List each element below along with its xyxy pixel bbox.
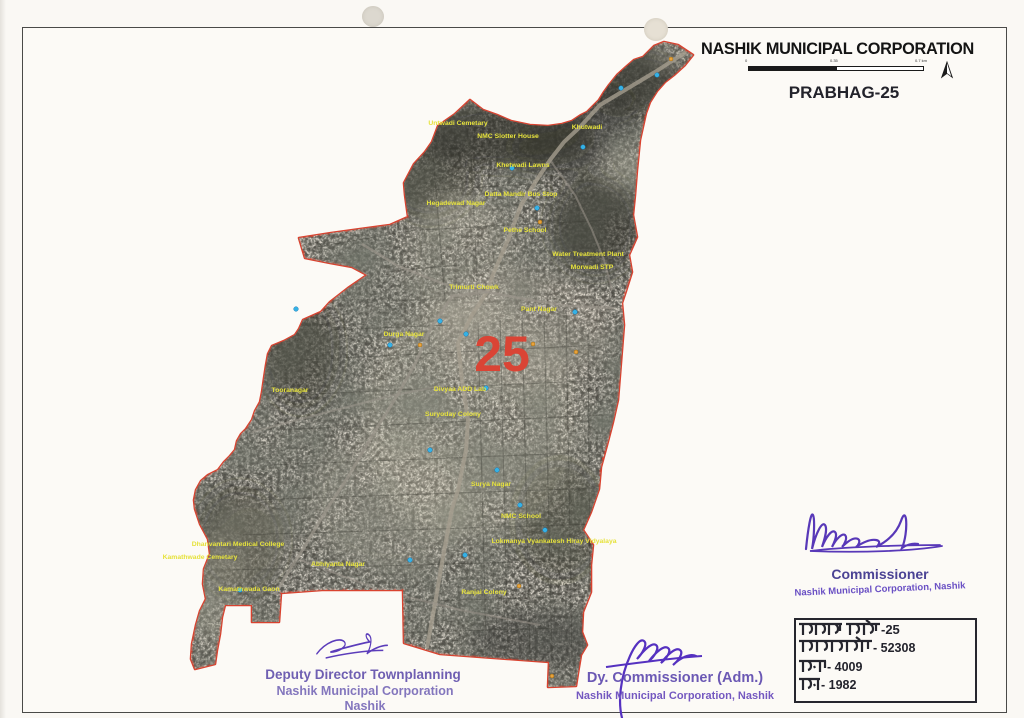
svg-text:Tooranagar: Tooranagar bbox=[272, 387, 309, 394]
svg-text:Datta Mandir Bus Stop: Datta Mandir Bus Stop bbox=[485, 191, 558, 198]
svg-text:Lokmanya Vyankatesh Hiray Vidy: Lokmanya Vyankatesh Hiray Vidyalaya bbox=[491, 538, 616, 545]
svg-text:Trimurti Chowk: Trimurti Chowk bbox=[449, 284, 499, 291]
svg-text:Pethe School: Pethe School bbox=[503, 227, 546, 234]
svg-text:Pant Nagar: Pant Nagar bbox=[521, 306, 557, 313]
svg-text:Morwadi STP: Morwadi STP bbox=[571, 264, 614, 271]
svg-text:Ranjai Colony: Ranjai Colony bbox=[461, 589, 507, 596]
svg-text:- 4009: - 4009 bbox=[827, 660, 862, 674]
svg-text:-25: -25 bbox=[881, 622, 900, 637]
svg-text:- 52308: - 52308 bbox=[873, 641, 915, 655]
svg-text:Dhanvantari Medical College: Dhanvantari Medical College bbox=[192, 541, 285, 548]
svg-text:Kamathwada Gaon: Kamathwada Gaon bbox=[218, 586, 279, 593]
svg-text:Untwadi Cemetary: Untwadi Cemetary bbox=[428, 120, 488, 127]
svg-text:25: 25 bbox=[474, 326, 530, 382]
svg-text:Khetwadi Lawns: Khetwadi Lawns bbox=[496, 162, 549, 169]
svg-text:Hegadewad Nagar: Hegadewad Nagar bbox=[427, 200, 486, 207]
svg-text:Abhiyanta Nagar: Abhiyanta Nagar bbox=[311, 561, 365, 568]
svg-text:NMC School: NMC School bbox=[501, 513, 541, 520]
svg-text:Durga Nagar: Durga Nagar bbox=[384, 331, 425, 338]
svg-text:Khutwadi: Khutwadi bbox=[572, 124, 603, 131]
svg-text:Surya Nagar: Surya Nagar bbox=[471, 481, 511, 488]
svg-text:- 1982: - 1982 bbox=[821, 678, 856, 692]
svg-text:Kamathwade Cemetary: Kamathwade Cemetary bbox=[163, 554, 238, 561]
svg-text:Divyaa ADD Lab: Divyaa ADD Lab bbox=[434, 386, 486, 393]
svg-text:Water Treatment Plant: Water Treatment Plant bbox=[552, 251, 624, 258]
svg-text:NMC Slotter House: NMC Slotter House bbox=[477, 133, 539, 140]
svg-text:Suryoday Colony: Suryoday Colony bbox=[425, 411, 481, 418]
